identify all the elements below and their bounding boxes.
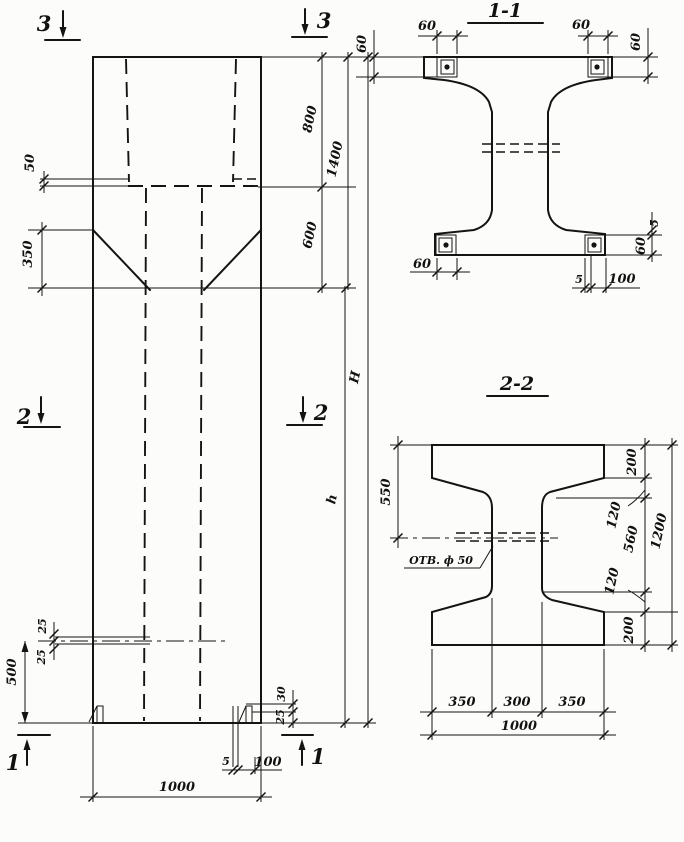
lifting-hole [38,637,225,644]
dim-column-width: 1000 [159,780,195,795]
dim-plate-right-height: 60 [629,33,644,51]
elevation-view: 800 600 1400 h Н 50 350 25 25 500 [5,8,376,802]
dim-head-length: 800 [300,104,320,134]
dim-flange-left: 350 [448,695,475,710]
foot-right-chamfer [239,704,296,722]
section-1-label: 1 [6,750,21,775]
dim-web-height: 560 [621,524,641,554]
dim-side-gap: 5 [648,219,661,227]
dim-lug-bottom: 25 [274,709,287,725]
section-mark-3-right: 3 [292,8,331,37]
section-2-2-right-dims: 200 120 560 120 200 1200 [542,438,678,652]
section-mark-2-right: 2 [287,397,328,425]
section-2-label: 2 [313,400,329,425]
section-mark-1-left: 1 [6,735,50,775]
section-3-label: 3 [317,8,332,33]
dim-plate-tr-width: 60 [572,18,590,33]
hole-callout: ОТВ. ф 50 [409,554,473,567]
dim-flange-bottom: 200 [622,616,637,644]
section-2-2-title: 2-2 [499,373,534,395]
dim-hole-from-bottom: 500 [5,658,20,685]
drawing-sheet: 800 600 1400 h Н 50 350 25 25 500 [0,0,684,842]
section-mark-1-right: 1 [282,735,325,769]
dim-ledge-offset: 50 [23,154,38,172]
section-1-1-view: 1-1 60 [355,0,662,293]
dim-flange-top: 200 [625,448,640,476]
dim-taper-height: 350 [21,240,36,267]
dim-anchor-thickness: 5 [222,755,230,768]
section-2-2-outline [432,445,604,645]
dim-plate-tl-width: 60 [418,19,436,34]
dim-hole-bottom: 25 [35,649,48,665]
dim-flange-right: 350 [558,695,585,710]
dim-fillet-top: 120 [604,500,624,530]
dim-plate-br-height: 60 [634,237,649,255]
ledge-detail [40,179,128,186]
section-1-1-title: 1-1 [488,0,522,22]
engineering-drawing: 800 600 1400 h Н 50 350 25 25 500 [0,0,684,842]
section-1-1-outline [424,57,612,255]
section-2-2-bottom-dims: 350 300 350 1000 [420,598,616,740]
dim-plate-left-height: 60 [355,35,370,53]
dim-section-height: 1200 [648,512,670,551]
dim-head-total: 1400 [324,140,346,179]
dim-shaft-length: h [324,493,341,505]
foot-lug-dimensions: 30 25 [274,686,298,728]
dim-web-width: 300 [503,695,530,710]
section-mark-3-left: 3 [37,11,80,40]
section-1-label: 1 [311,744,326,769]
dim-top-to-hole: 550 [379,478,394,505]
section-2-2-hole: ОТВ. ф 50 [390,533,558,568]
section-1-1-dimensions: 60 60 60 60 60 5 [355,18,662,293]
dim-transition-length: 600 [300,220,320,250]
dim-lug-top: 30 [275,686,288,702]
dim-plate-bottom-width: 100 [608,272,635,287]
foot-left-chamfer [89,706,103,722]
dim-anchor-length: 100 [254,755,281,770]
hidden-lines [126,59,258,721]
bottom-width-dimension: 1000 [80,726,272,802]
section-2-2-view: 2-2 ОТВ. ф 50 550 [379,373,678,740]
dim-plate-bl-width: 60 [413,257,431,272]
section-3-label: 3 [37,11,52,36]
section-2-label: 2 [16,404,32,429]
dim-hole-top: 25 [36,618,49,634]
anchor-dimensions: 5 100 [222,755,282,775]
dim-total-height: Н [347,369,365,386]
dim-bottom-gap: 5 [575,273,583,286]
section-2-2-left-dim: 550 [379,436,432,548]
embedded-plates [436,57,608,255]
left-dimensions: 50 350 25 25 500 [5,154,93,723]
dim-section-width: 1000 [501,719,537,734]
anchor-rod [233,706,238,767]
right-dimensions: 800 600 1400 h Н [28,52,376,728]
column-outline [93,57,261,723]
section-mark-2-left: 2 [16,397,60,429]
